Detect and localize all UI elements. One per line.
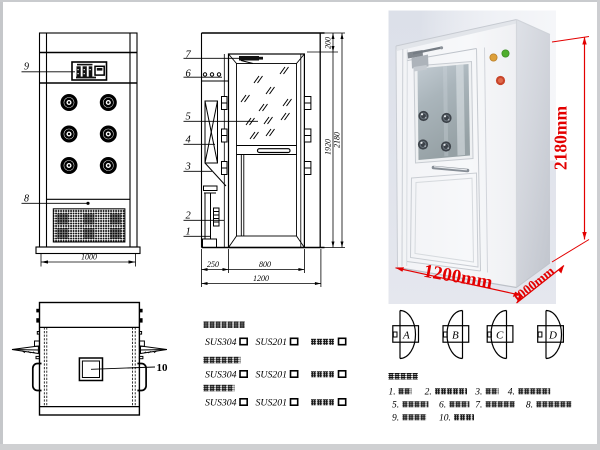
svg-text:9: 9 (24, 62, 29, 73)
svg-text:7: 7 (186, 50, 192, 61)
svg-text:3.: 3. (474, 388, 482, 398)
svg-text:800: 800 (259, 260, 271, 269)
svg-text:C: C (496, 330, 504, 342)
svg-text:SUS201: SUS201 (256, 370, 288, 381)
svg-text:1000: 1000 (81, 253, 97, 262)
svg-text:8.: 8. (526, 401, 533, 411)
svg-text:SUS201: SUS201 (256, 337, 288, 348)
svg-text:250: 250 (207, 260, 219, 269)
svg-text:2.: 2. (425, 388, 432, 398)
svg-text:10: 10 (157, 362, 169, 374)
svg-text:B: B (452, 330, 459, 342)
svg-text:5.: 5. (392, 401, 399, 411)
svg-text:1200: 1200 (253, 274, 269, 283)
svg-text:2180mm: 2180mm (551, 106, 571, 171)
svg-text:4.: 4. (508, 388, 515, 398)
svg-text:6.: 6. (439, 401, 446, 411)
svg-text:9.: 9. (392, 414, 399, 424)
svg-text:SUS304: SUS304 (205, 398, 237, 409)
svg-text:6: 6 (186, 69, 192, 80)
svg-text:SUS304: SUS304 (205, 370, 237, 381)
svg-text:200: 200 (324, 37, 333, 49)
svg-text:5: 5 (186, 112, 191, 123)
svg-text:A: A (402, 330, 410, 342)
svg-text:10.: 10. (439, 414, 451, 424)
svg-text:7.: 7. (475, 401, 482, 411)
svg-text:2180: 2180 (333, 132, 342, 148)
svg-text:1920: 1920 (324, 139, 333, 155)
svg-text:1.: 1. (389, 388, 396, 398)
svg-text:D: D (548, 330, 557, 342)
svg-text:SUS201: SUS201 (256, 398, 288, 409)
svg-text:SUS304: SUS304 (205, 337, 237, 348)
